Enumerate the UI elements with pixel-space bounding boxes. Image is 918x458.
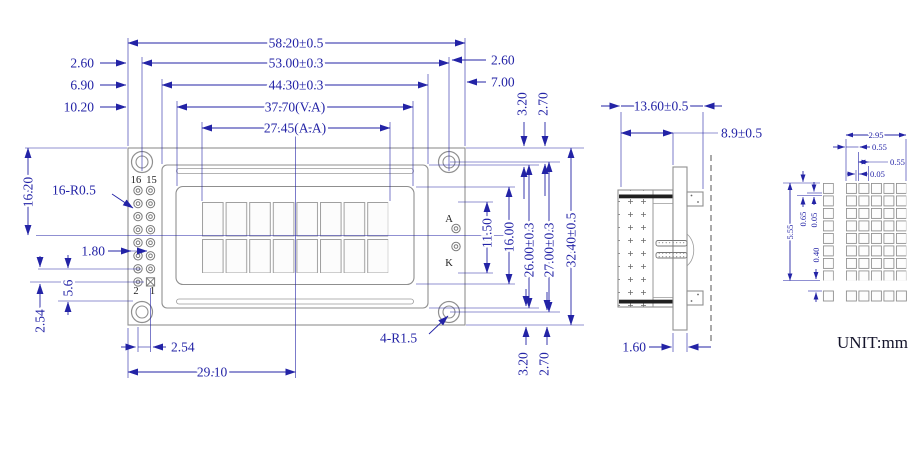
- dim-hole-span-width: 53.00±0.3: [269, 56, 324, 71]
- side-bottom-clip: [619, 300, 675, 304]
- dim-offset-right-1: 2.60: [491, 53, 515, 68]
- backlight-anode-pad: [452, 224, 460, 232]
- side-pcb: [673, 167, 687, 330]
- dim-offset-left-2: 6.90: [70, 78, 94, 93]
- anode-label: A: [445, 214, 453, 225]
- side-top-clip: [619, 195, 675, 199]
- dim-pin-1-80: 1.80: [81, 244, 105, 259]
- side-view: 13.60±0.5 8.9±0.5 1.60: [601, 99, 762, 355]
- pin-radius-note: 16-R0.5: [52, 183, 96, 198]
- mounting-hole-bottom-left: [132, 302, 153, 323]
- side-pin-upper: [656, 241, 687, 247]
- adjacent-column-dots: [823, 183, 834, 281]
- dim-offset-right-2: 7.00: [491, 75, 515, 90]
- dim-bottom-offset-2: 2.70: [537, 352, 552, 376]
- dim-left-height: 16.20: [21, 177, 36, 208]
- dim-pin-2-54-vertical: 2.54: [33, 309, 48, 333]
- side-tab-top: [687, 192, 703, 206]
- dim-viewing-area-height: 16.00: [502, 222, 517, 253]
- dim-center-offset: 29.10: [197, 365, 228, 380]
- dim-char-height: 5.55: [785, 225, 795, 240]
- side-backlight-block: [618, 190, 653, 307]
- dim-viewing-area-width: 37.70(V.A): [265, 100, 326, 115]
- dim-dot-gap-y: 0.05: [809, 213, 819, 228]
- dim-side-depth: 13.60±0.5: [634, 99, 689, 114]
- character-cell-grid: [202, 202, 388, 273]
- dim-side-body: 8.9±0.5: [721, 126, 762, 141]
- pin1-square-pad: [146, 278, 154, 286]
- pin-label-15: 15: [146, 175, 157, 186]
- dim-dot-width: 0.55: [890, 157, 905, 167]
- dim-active-area-height: 11.50: [480, 218, 495, 248]
- dim-offset-left-3: 10.20: [64, 100, 95, 115]
- character-dot-grid: [846, 183, 906, 281]
- dim-dot-pitch-x: 0.55: [872, 142, 887, 152]
- dim-total-width: 58.20±0.5: [269, 36, 324, 51]
- front-view: 16 15 2 1 A K: [128, 148, 465, 325]
- dim-pin-5-6: 5.6: [61, 279, 76, 296]
- side-pin-lower: [656, 253, 687, 259]
- pin-label-2: 2: [133, 286, 138, 297]
- drawing-canvas: 16 15 2 1 A K: [0, 0, 918, 458]
- backlight-cathode-pad: [452, 242, 460, 250]
- pin-label-16: 16: [131, 175, 142, 186]
- dim-total-height: 32.40±0.5: [564, 212, 579, 267]
- dim-pin-pitch: 2.54: [171, 340, 195, 355]
- hole-radius-note: 4-R1.5: [380, 331, 417, 346]
- dot-matrix-detail: 2.95 0.55 0.55 0.05 5.55 0.65 0: [783, 130, 906, 302]
- side-pin-brace: [687, 234, 694, 266]
- dim-dot-gap-x: 0.05: [870, 169, 885, 179]
- dim-top-offset-1: 3.20: [515, 92, 530, 116]
- dim-side-pcb-thickness: 1.60: [622, 340, 646, 355]
- dim-bezel-height: 26.00±0.3: [522, 222, 537, 277]
- dim-bottom-offset-1: 3.20: [516, 352, 531, 376]
- dim-hole-span-height: 27.00±0.3: [542, 222, 557, 277]
- cathode-label: K: [445, 258, 453, 269]
- dim-bezel-width: 44.30±0.3: [269, 78, 324, 93]
- cursor-row-dots: [823, 291, 906, 301]
- dim-offset-left-1: 2.60: [70, 56, 94, 71]
- dim-top-offset-2: 2.70: [536, 92, 551, 116]
- dim-char-width: 2.95: [869, 130, 884, 140]
- side-tab-bottom: [687, 291, 703, 305]
- dim-cursor-row-gap: 0.40: [811, 248, 821, 263]
- unit-note: UNIT:mm: [837, 333, 908, 352]
- dim-dot-pitch-y: 0.65: [798, 212, 808, 227]
- lcd-dimension-drawing: 16 15 2 1 A K: [0, 0, 918, 458]
- dim-active-area-width: 27.45(A.A): [264, 121, 326, 136]
